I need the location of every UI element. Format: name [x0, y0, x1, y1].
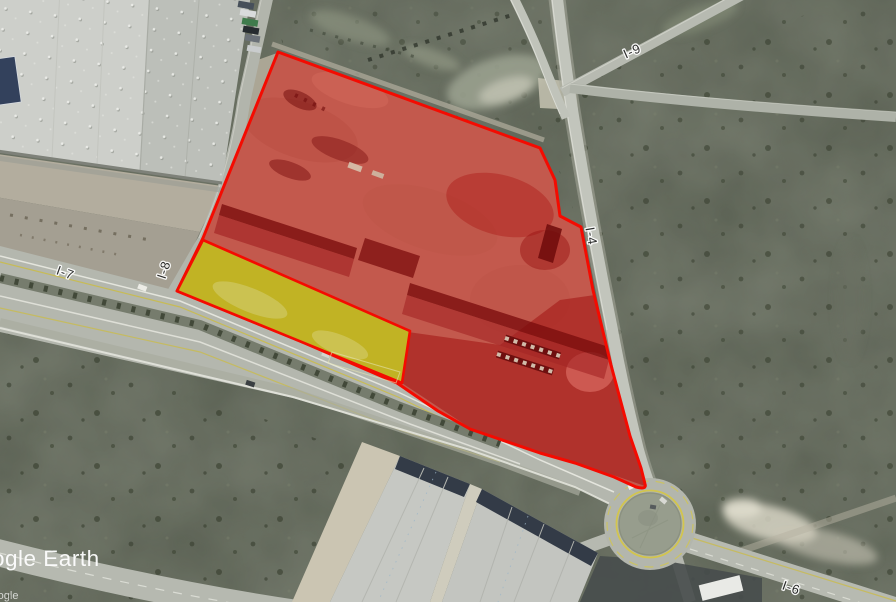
dirt-patch: [836, 240, 864, 360]
island-mound: [638, 510, 658, 526]
satellite-view: I-7 I-8 I-9 I-4 I-6 Google Earth Google: [0, 0, 896, 602]
roundabout: [604, 478, 696, 570]
watermark-google-logo: Google: [0, 590, 18, 602]
road-label-i4: I-4: [582, 226, 600, 247]
map-canvas[interactable]: I-7 I-8 I-9 I-4 I-6 Google Earth Google: [0, 0, 896, 602]
watermark-google-earth: Google Earth: [0, 546, 100, 571]
dirt-patch: [722, 498, 762, 518]
